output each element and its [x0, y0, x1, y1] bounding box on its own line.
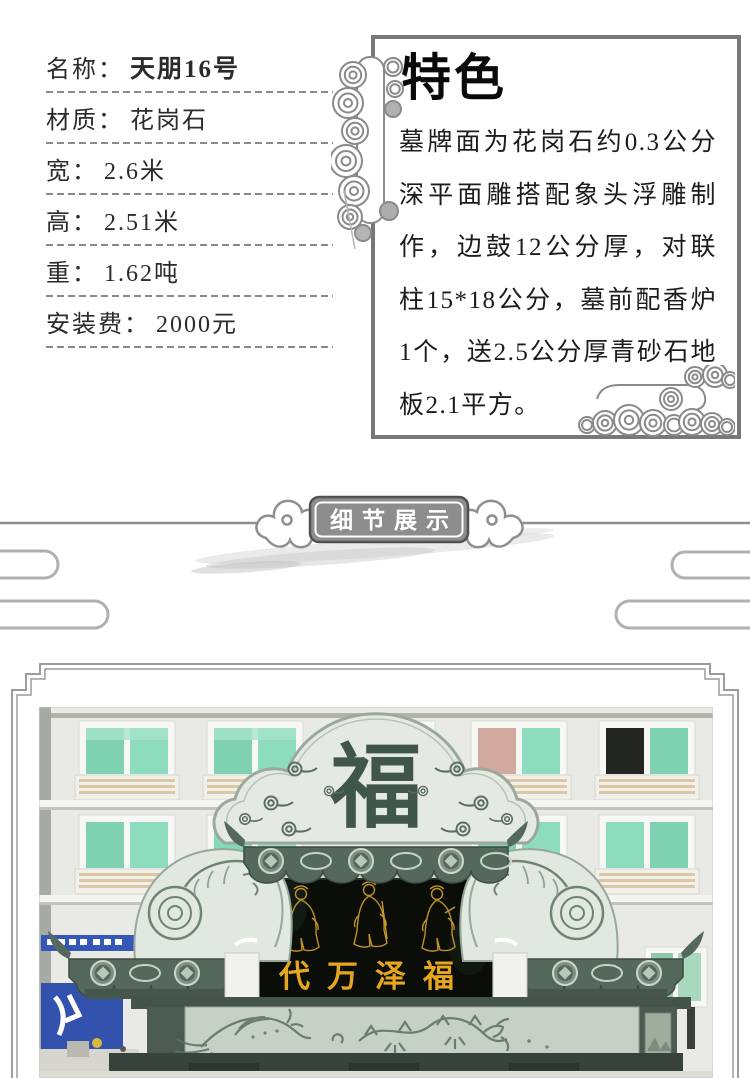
spec-label: 材质： [46, 108, 124, 134]
monument-base [39, 1053, 713, 1078]
spec-row-weight: 重：1.62吨 [46, 246, 333, 297]
spec-value: 1.62吨 [104, 261, 180, 287]
inscription-panel: 代万泽福 [257, 879, 493, 999]
cloud-ornament-bottom-right [575, 365, 735, 437]
cloud-ornament-left [331, 49, 415, 257]
spec-label: 重： [46, 261, 98, 287]
spec-label: 安装费： [46, 312, 150, 338]
spec-row-width: 宽：2.6米 [46, 144, 333, 195]
spec-row-material: 材质：花岗石 [46, 93, 333, 144]
panel-inscription: 代万泽福 [278, 959, 471, 994]
spec-value: 2.6米 [104, 159, 166, 185]
spec-row-install-fee: 安装费：2000元 [46, 297, 333, 348]
spec-label: 名称： [46, 57, 124, 83]
section-banner-label: 细节展示 [330, 507, 458, 533]
product-detail-page: 名称：天朋16号 材质：花岗石 宽：2.6米 高：2.51米 重：1.62吨 安… [0, 0, 750, 1078]
spec-row-name: 名称：天朋16号 [46, 42, 333, 93]
feature-title: 特色 [401, 49, 737, 107]
spec-value: 2000元 [156, 312, 238, 338]
feature-box: 特色 墓牌面为花岗石约0.3公分深平面雕搭配象头浮雕制作，边鼓12公分厚，对联柱… [371, 35, 741, 439]
monument-photo: 代万泽福 福 [39, 707, 713, 1078]
capsule-ornaments [0, 551, 750, 628]
spec-value: 天朋16号 [130, 56, 240, 83]
section-divider: 细节展示 [0, 480, 750, 650]
spec-row-height: 高：2.51米 [46, 195, 333, 246]
spec-list: 名称：天朋16号 材质：花岗石 宽：2.6米 高：2.51米 重：1.62吨 安… [46, 42, 333, 348]
spec-value: 花岗石 [130, 108, 208, 134]
section-banner: 细节展示 [310, 497, 468, 542]
cloud-character: 福 [329, 737, 422, 839]
detail-photo-section: 代万泽福 福 [0, 660, 750, 1078]
spec-label: 高： [46, 210, 98, 236]
spec-label: 宽： [46, 159, 98, 185]
spec-value: 2.51米 [104, 210, 180, 236]
